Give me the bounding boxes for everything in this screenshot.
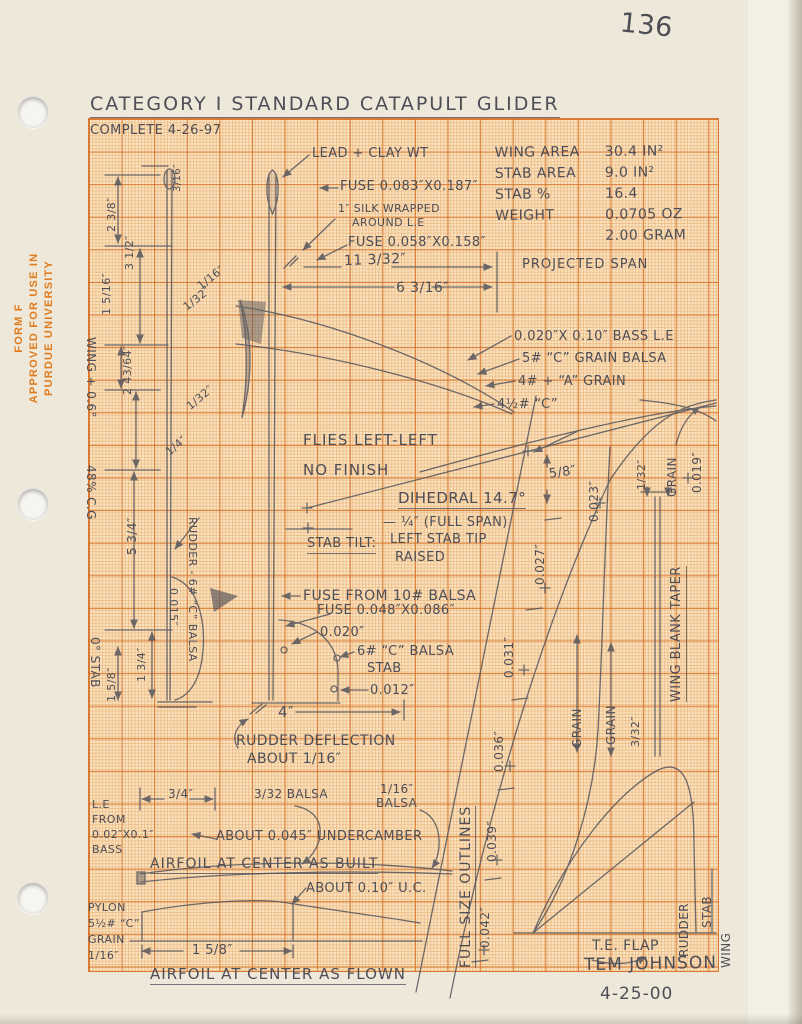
note-flies: FLIES LEFT-LEFT <box>303 432 438 449</box>
left-dimension-lines <box>105 166 172 700</box>
dim-t020: 0.020″ <box>320 626 364 641</box>
note-stab-balsa-1: 6# “C” BALSA <box>357 645 454 660</box>
dim-wingblank-132: 1/32″ <box>636 459 649 490</box>
dim-t042: 0.042″ <box>479 907 493 948</box>
dim-span-total: 11 3/32″ <box>344 251 407 269</box>
completion-date-note: COMPLETE 4-26-97 <box>90 124 221 139</box>
note-grain-right: GRAIN <box>605 705 619 745</box>
spec-row: STAB AREA 9.0 IN² <box>495 162 686 185</box>
note-wing-incidence: WING + 0.6° <box>83 337 97 418</box>
note-stab-tilt-3: RAISED <box>395 551 445 566</box>
dim-t027: 0.027″ <box>534 544 548 585</box>
dim-34: 3/4″ <box>168 788 193 802</box>
note-pylon-3: GRAIN <box>88 932 140 948</box>
note-lead-clay: LEAD + CLAY WT <box>312 147 429 162</box>
stamp-approved-line: APPROVED FOR USE IN <box>27 248 42 408</box>
dim-t023: 0.023″ <box>588 481 602 522</box>
note-grain-45: 4½# “C” <box>497 398 558 413</box>
dim-t012: 0.012″ <box>370 684 414 699</box>
dim-1-58: 1 5/8″ <box>106 667 119 702</box>
note-projected-span: PROJECTED SPAN <box>522 258 648 273</box>
note-stab-balsa-2: STAB <box>367 662 402 677</box>
spec-row: STAB % 16.4 <box>495 183 686 206</box>
note-balsa-332: 3/32 BALSA <box>254 788 328 802</box>
page-title: CATEGORY I STANDARD CATAPULT GLIDER <box>90 94 560 118</box>
note-te-flap: T.E. FLAP <box>592 938 659 954</box>
note-grain-5: 5# “C” GRAIN BALSA <box>522 352 667 367</box>
note-full-span: — ¼″ (FULL SPAN) <box>383 516 508 531</box>
note-le-from-3: 0.02″X0.1″ <box>92 827 154 842</box>
label-wing: WING <box>720 933 734 968</box>
note-stab-tilt: STAB TILT: <box>307 537 376 554</box>
spec-label: STAB % <box>495 184 605 206</box>
dim-nose-316: 3/16″ <box>172 164 184 192</box>
note-fuse-upper: FUSE 0.083″X0.187″ <box>340 180 478 195</box>
spec-label: WEIGHT <box>495 205 605 227</box>
dim-span-half: 6 3/16″ <box>396 280 449 296</box>
scanned-plan-page: FORM F APPROVED FOR USE IN PURDUE UNIVER… <box>0 0 802 1024</box>
dim-1-34: 1 3/4″ <box>136 647 149 682</box>
note-bass-le: 0.020″X 0.10″ BASS L.E <box>514 330 674 345</box>
note-pylon: PYLON 5½# “C” GRAIN 1/16″ <box>88 900 140 964</box>
dim-5-34: 5 3/4″ <box>126 517 140 555</box>
note-le-from: L.E FROM 0.02″X0.1″ BASS <box>92 797 154 857</box>
note-rudder-material: RUDDER - 6# “C” BALSA <box>185 517 198 662</box>
spec-row: WING AREA 30.4 IN² <box>495 141 686 164</box>
note-grain-tip: GRAIN <box>666 457 680 497</box>
note-stab-tilt-2: LEFT STAB TIP <box>390 533 487 548</box>
dim-wingblank-332: 3/32″ <box>630 716 643 747</box>
fuselage-top-view <box>158 169 250 707</box>
note-cg: 48% C.G <box>83 465 97 520</box>
dim-3-12: 3 1/2″ <box>124 235 137 270</box>
note-grain-left: GRAIN <box>571 708 585 748</box>
note-le-from-1: L.E <box>92 797 154 812</box>
dim-t015: 0.015″ <box>166 588 179 626</box>
dim-2-38: 2 3/8″ <box>106 197 119 232</box>
dim-2-4364: 2 43/64″ <box>122 345 135 395</box>
label-rudder: RUDDER <box>678 903 692 957</box>
dim-1-58-pylon: 1 5/8″ <box>192 944 233 959</box>
note-balsa-116-b: BALSA <box>376 797 417 811</box>
note-fuse-10: FUSE FROM 10# BALSA <box>303 588 476 604</box>
note-rudder-deflection-2: ABOUT 1/16″ <box>247 751 341 767</box>
purdue-form-stamp: FORM F APPROVED FOR USE IN PURDUE UNIVER… <box>12 248 68 408</box>
dim-1-516: 1 5/16″ <box>101 273 114 315</box>
note-le-from-2: FROM <box>92 812 154 827</box>
signature-date: 4-25-00 <box>600 985 673 1005</box>
caption-airfoil-flown: AIRFOIL AT CENTER AS FLOWN <box>150 966 406 985</box>
page-number: 136 <box>619 7 675 43</box>
note-pylon-4: 1/16″ <box>88 948 140 964</box>
dim-t036: 0.036″ <box>493 731 507 772</box>
note-uc-010: ABOUT 0.10″ U.C. <box>306 882 427 897</box>
spec-row: 2.00 GRAM <box>495 225 686 248</box>
note-le-from-4: BASS <box>92 842 154 857</box>
spec-value: 30.4 IN² <box>605 141 664 163</box>
signature-name: TEM JOHNSON <box>584 954 717 976</box>
spec-label: WING AREA <box>495 142 605 164</box>
note-silk-2: AROUND L.E <box>352 217 425 230</box>
stamp-form-line: FORM F <box>12 248 27 408</box>
spec-label: STAB AREA <box>495 163 605 185</box>
dim-t039: 0.039″ <box>486 821 500 862</box>
note-balsa-116-a: 1/16″ <box>380 783 413 797</box>
note-fuse-lower: FUSE 0.058″X0.158″ <box>348 236 486 251</box>
spec-value: 16.4 <box>605 184 638 205</box>
spec-value: 9.0 IN² <box>605 162 655 183</box>
note-silk-1: 1″ SILK WRAPPED <box>338 203 440 216</box>
spec-value: 0.0705 OZ <box>605 204 683 226</box>
note-undercamber: ABOUT 0.045″ UNDERCAMBER <box>216 830 422 845</box>
airfoil-as-flown <box>130 888 422 958</box>
note-wing-blank-taper: WING BLANK TAPER <box>670 566 687 702</box>
note-rudder-deflection-1: RUDDER DEFLECTION <box>236 733 396 749</box>
spec-table: WING AREA 30.4 IN² STAB AREA 9.0 IN² STA… <box>495 141 687 248</box>
note-stab-incidence: 0° STAB <box>87 637 101 688</box>
caption-airfoil-built: AIRFOIL AT CENTER AS BUILT <box>150 856 378 874</box>
label-stab: STAB <box>701 896 715 928</box>
spec-value: 2.00 GRAM <box>605 225 686 247</box>
dim-t031: 0.031″ <box>503 637 517 678</box>
dim-stab-chord: 4″ <box>278 704 294 721</box>
note-finish: NO FINISH <box>303 462 389 479</box>
note-pylon-2: 5½# “C” <box>88 916 140 932</box>
stamp-university-line: PURDUE UNIVERSITY <box>42 248 57 408</box>
note-grain-4: 4# + “A” GRAIN <box>518 375 626 390</box>
spec-label <box>495 226 605 248</box>
note-dihedral: DIHEDRAL 14.7° <box>398 490 526 509</box>
dim-t019: 0.019″ <box>691 452 705 493</box>
note-pylon-1: PYLON <box>88 900 140 916</box>
note-fuse-tail: FUSE 0.048″X0.086″ <box>317 604 455 619</box>
note-full-size-outlines: FULL SIZE OUTLINES <box>458 806 476 968</box>
spec-row: WEIGHT 0.0705 OZ <box>495 204 686 227</box>
